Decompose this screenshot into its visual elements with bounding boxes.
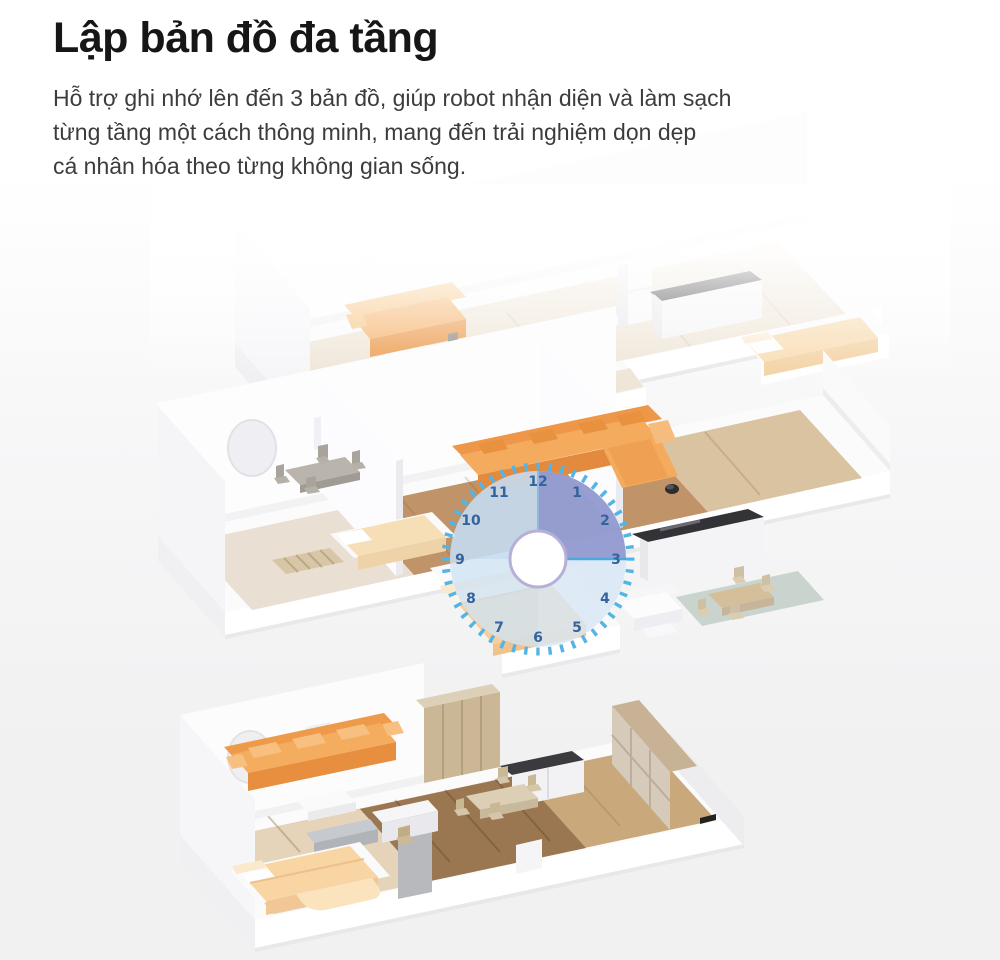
clock-number: 5: [572, 620, 582, 636]
floor-plan-bottom: [180, 663, 744, 952]
clock-number: 1: [572, 485, 582, 501]
white-sofa-set: [612, 583, 682, 638]
description-line: từng tầng một cách thông minh, mang đến …: [53, 115, 953, 149]
clock-number: 12: [528, 474, 547, 490]
clock-number: 3: [611, 552, 621, 568]
cabinets-bottom-floor: [416, 684, 500, 783]
page-title: Lập bản đồ đa tầng: [53, 14, 953, 63]
clock-number: 6: [533, 630, 543, 646]
clock-number: 8: [466, 591, 476, 607]
wall-mirror: [228, 420, 276, 476]
clock-number: 9: [455, 552, 465, 568]
clock-number: 10: [461, 513, 481, 529]
clock-number: 4: [600, 591, 610, 607]
clock-number: 11: [489, 485, 508, 501]
description-line: Hỗ trợ ghi nhớ lên đến 3 bản đồ, giúp ro…: [53, 81, 953, 115]
feature-description: Hỗ trợ ghi nhớ lên đến 3 bản đồ, giúp ro…: [53, 81, 953, 183]
clock-number: 2: [600, 513, 610, 529]
clock-number: 7: [494, 620, 504, 636]
clock-hub: [510, 531, 566, 587]
page: Lập bản đồ đa tầng Hỗ trợ ghi nhớ lên đế…: [0, 0, 1000, 960]
feature-copy: Lập bản đồ đa tầng Hỗ trợ ghi nhớ lên đế…: [53, 14, 953, 183]
description-line: cá nhân hóa theo từng không gian sống.: [53, 149, 953, 183]
standing-panel: [516, 839, 542, 874]
